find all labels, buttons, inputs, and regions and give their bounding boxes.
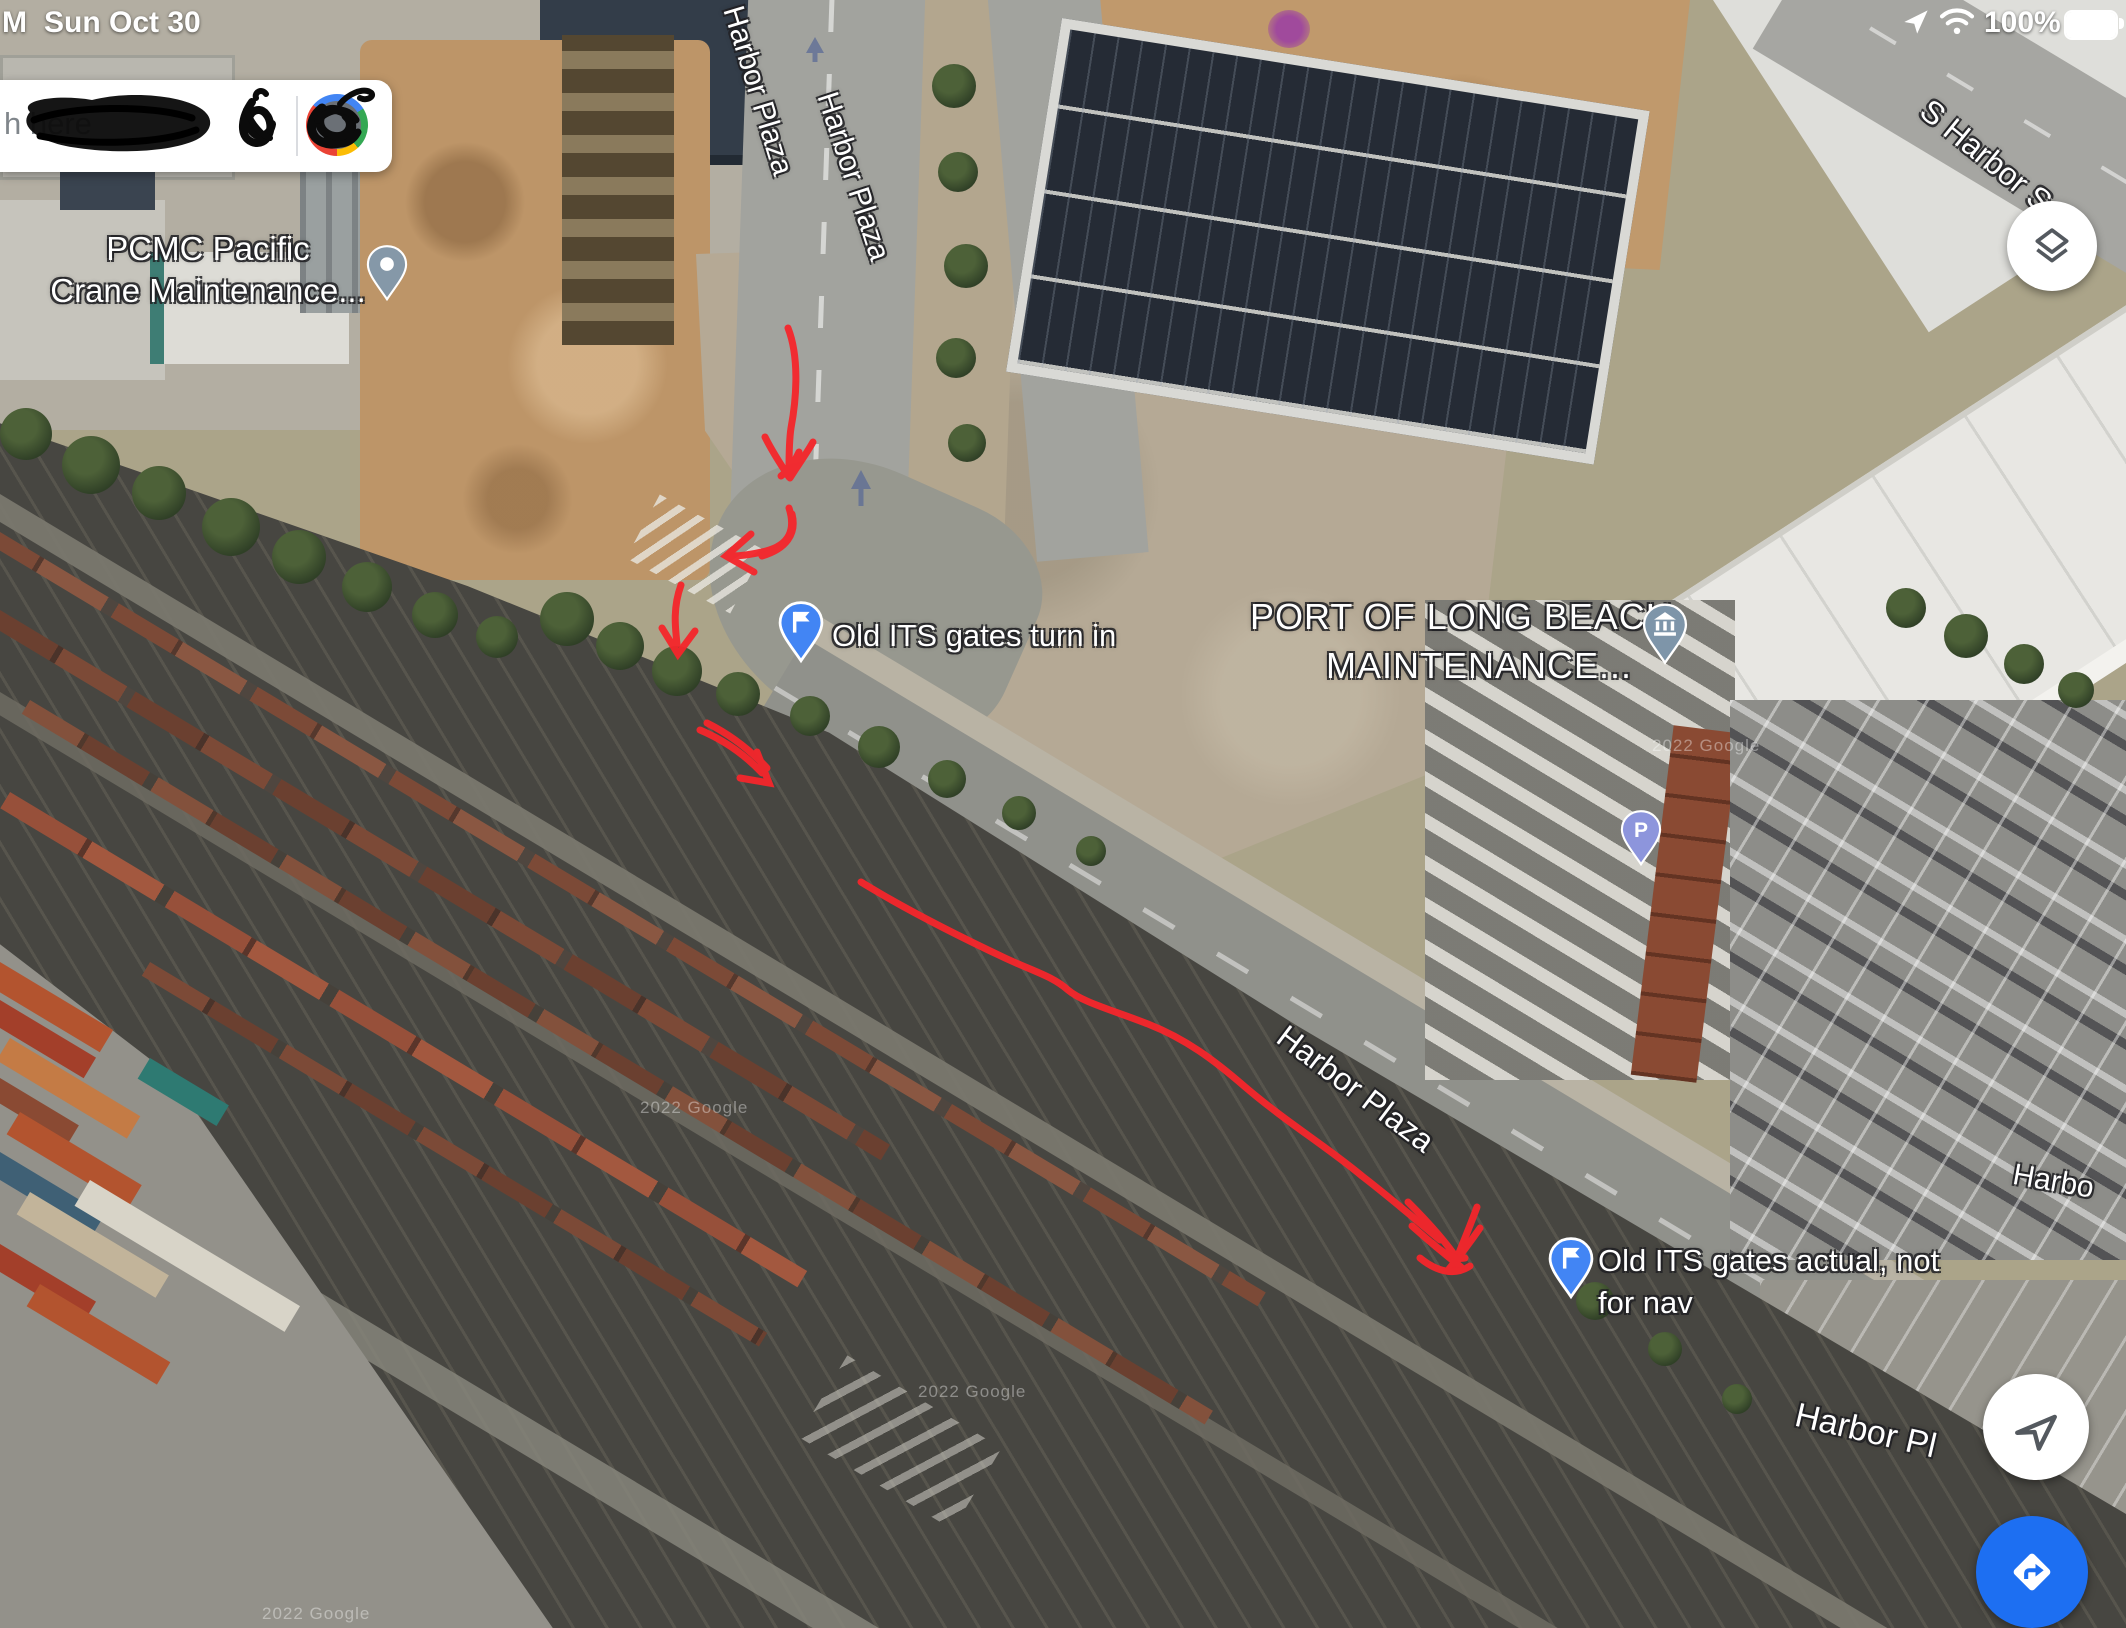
- parking-pin[interactable]: P: [1620, 808, 1662, 868]
- wifi-icon: [1938, 6, 1976, 36]
- poi-label-pcmc-line2: Crane Maintenance...: [8, 270, 408, 312]
- directions-button[interactable]: [1976, 1516, 2088, 1628]
- layers-icon: [2030, 224, 2074, 268]
- screenshot-root: { "status_bar": { "time_fragment": "M", …: [0, 0, 2126, 1628]
- directions-icon: [2004, 1544, 2060, 1600]
- poi-label-port-lb-line1: PORT OF LONG BEACH: [1250, 592, 1632, 641]
- dot-icon: [380, 257, 394, 271]
- poi-label-port-lb-line2: MAINTENANCE...: [1250, 641, 1632, 690]
- locate-button[interactable]: [1983, 1374, 2089, 1480]
- lane-direction-arrow-icon: [806, 37, 871, 506]
- battery-percent: 100%: [1984, 6, 2061, 40]
- scribble-over-search-text: [26, 95, 210, 151]
- poi-label-old-its-actual[interactable]: Old ITS gates actual, not for nav: [1598, 1240, 1939, 1324]
- status-date: Sun Oct 30: [44, 6, 201, 40]
- layers-button[interactable]: [2007, 201, 2097, 291]
- poi-label-old-its-turn-in[interactable]: Old ITS gates turn in: [832, 618, 1116, 654]
- parking-letter: P: [1634, 819, 1648, 842]
- search-bar[interactable]: h here: [0, 80, 392, 172]
- scribble-over-voice-search[interactable]: [243, 91, 272, 143]
- redaction-scribbles: [0, 80, 392, 172]
- poi-label-port-of-long-beach[interactable]: PORT OF LONG BEACH MAINTENANCE...: [1250, 592, 1632, 690]
- scribble-over-avatar: [312, 91, 373, 144]
- saved-flag-pin-turn-in[interactable]: [778, 600, 824, 664]
- poi-label-pcmc[interactable]: PCMC Pacific Crane Maintenance...: [8, 228, 408, 312]
- poi-label-old-its-actual-line2: for nav: [1598, 1282, 1939, 1324]
- poi-label-pcmc-line1: PCMC Pacific: [8, 228, 408, 270]
- navigation-arrow-icon: [2010, 1401, 2062, 1453]
- status-bar: M Sun Oct 30 100%: [0, 0, 2126, 48]
- poi-pin-port-maintenance[interactable]: [1642, 602, 1688, 666]
- battery-icon-tip: [2119, 18, 2124, 29]
- poi-pin-pcmc[interactable]: [366, 244, 408, 302]
- saved-flag-pin-actual[interactable]: [1548, 1236, 1594, 1300]
- location-services-icon: [1902, 8, 1930, 36]
- battery-icon: [2064, 10, 2118, 40]
- poi-label-old-its-actual-line1: Old ITS gates actual, not: [1598, 1240, 1939, 1282]
- status-time-fragment: M: [2, 6, 27, 40]
- hand-drawn-red-arrows: [662, 328, 1480, 1272]
